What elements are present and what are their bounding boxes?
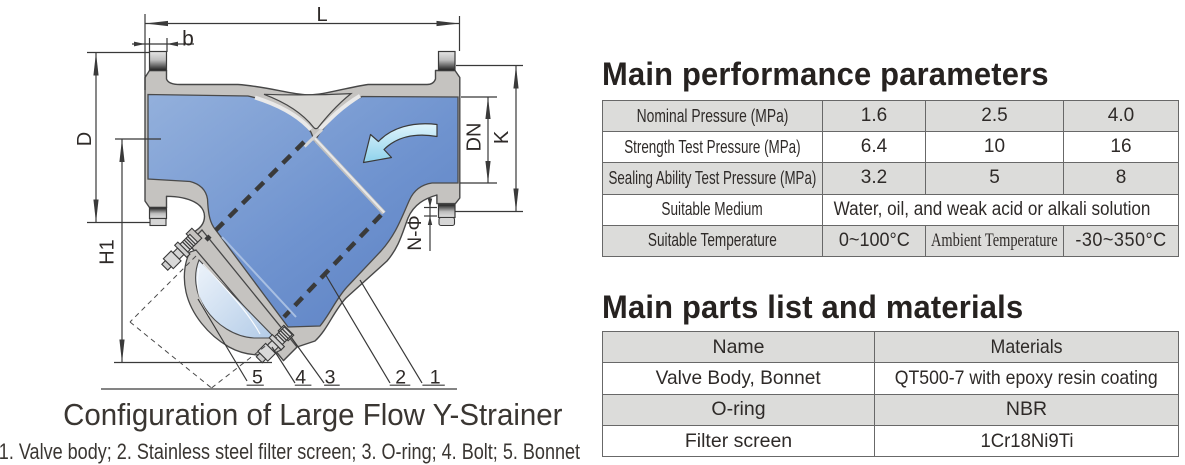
svg-text:D: D [74, 132, 96, 146]
svg-text:DN: DN [464, 123, 486, 152]
svg-text:b: b [182, 28, 194, 51]
svg-text:N-Φ: N-Φ [405, 215, 426, 250]
svg-text:L: L [316, 4, 327, 26]
svg-text:K: K [491, 130, 513, 144]
svg-text:H1: H1 [97, 239, 119, 265]
